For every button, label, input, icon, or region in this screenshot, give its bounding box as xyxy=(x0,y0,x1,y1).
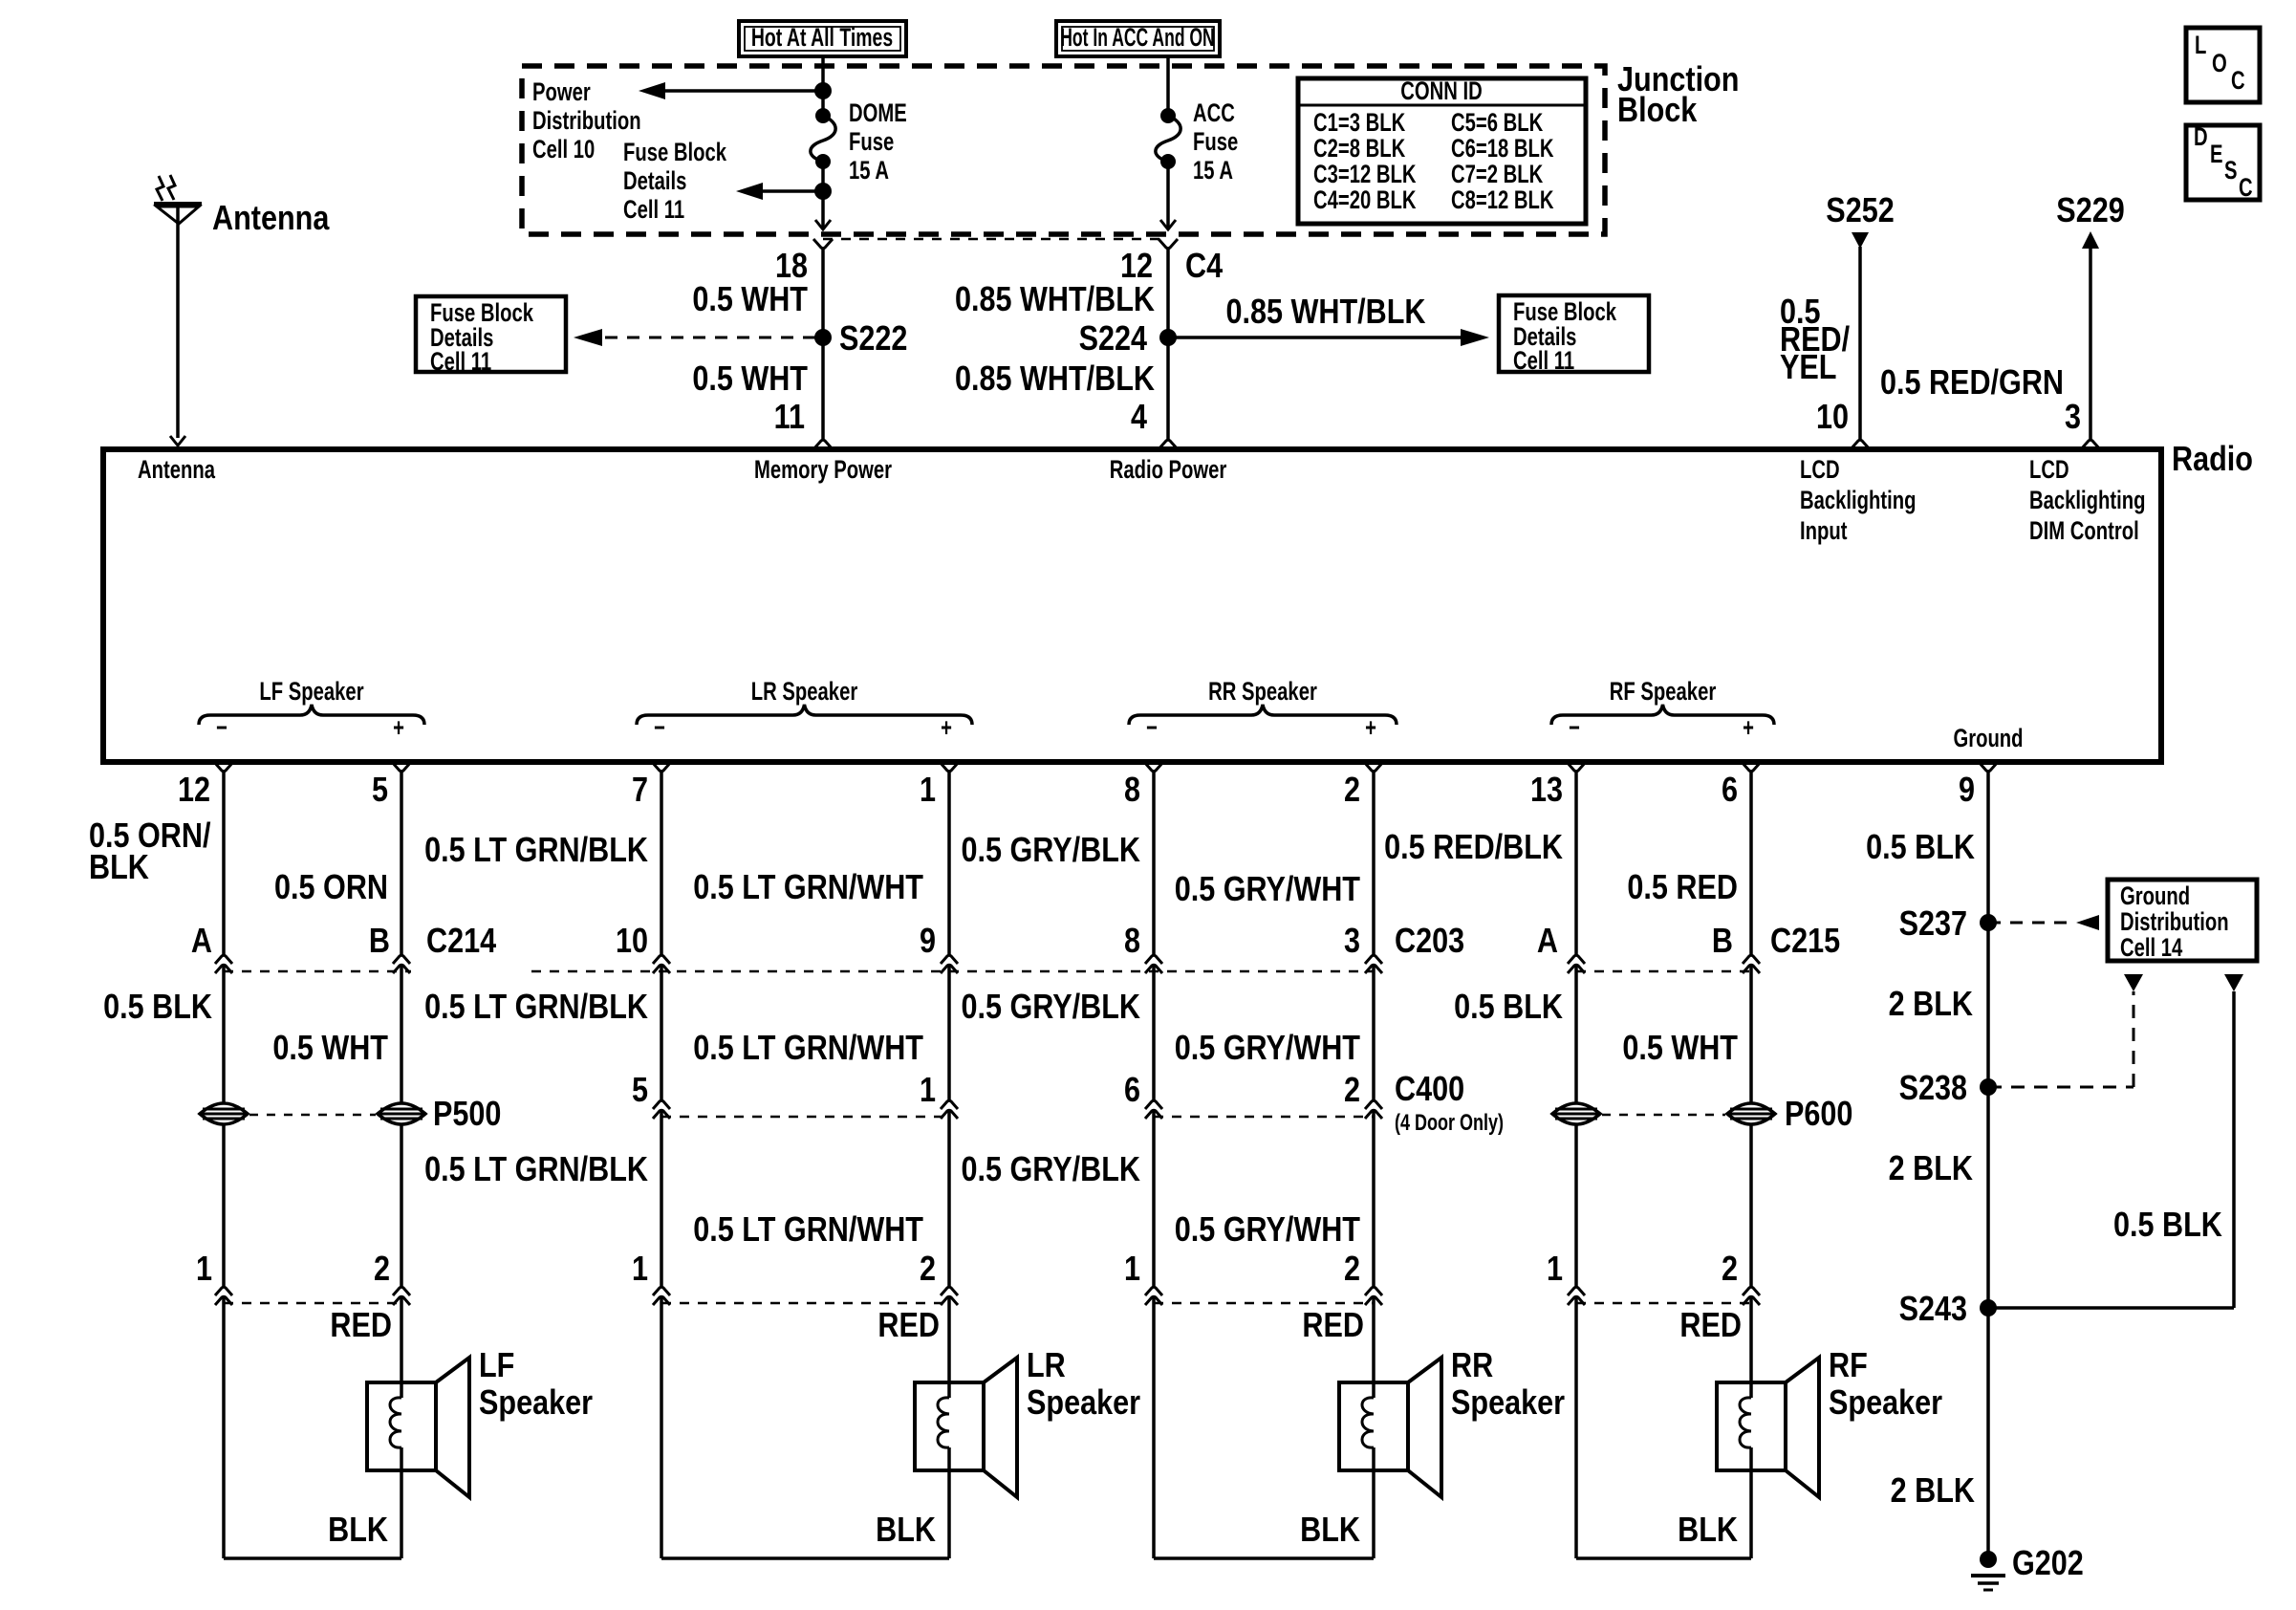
svg-text:7: 7 xyxy=(632,772,648,810)
svg-text:0.5 LT GRN/WHT: 0.5 LT GRN/WHT xyxy=(693,1211,923,1250)
svg-text:0.5 LT GRN/WHT: 0.5 LT GRN/WHT xyxy=(693,1030,923,1068)
svg-text:C1=3 BLK: C1=3 BLK xyxy=(1313,108,1406,138)
svg-text:Memory Power: Memory Power xyxy=(754,455,892,485)
svg-text:RED: RED xyxy=(330,1307,392,1345)
svg-text:Details: Details xyxy=(623,166,686,196)
svg-text:+: + xyxy=(941,713,952,743)
svg-text:Distribution: Distribution xyxy=(2120,907,2229,937)
svg-text:0.5 GRY/WHT: 0.5 GRY/WHT xyxy=(1175,1211,1361,1250)
svg-text:8: 8 xyxy=(1124,923,1140,961)
svg-text:18: 18 xyxy=(775,248,808,286)
svg-text:12: 12 xyxy=(1120,248,1153,286)
svg-text:5: 5 xyxy=(632,1072,648,1110)
svg-text:10: 10 xyxy=(616,923,648,961)
svg-text:S: S xyxy=(2224,156,2238,185)
svg-text:0.5 WHT: 0.5 WHT xyxy=(1622,1030,1738,1068)
svg-text:B: B xyxy=(1712,923,1733,961)
svg-text:C7=2 BLK: C7=2 BLK xyxy=(1451,160,1544,189)
svg-text:−: − xyxy=(654,713,665,743)
svg-text:C203: C203 xyxy=(1395,923,1464,961)
svg-text:LR: LR xyxy=(1027,1347,1066,1385)
svg-text:Speaker: Speaker xyxy=(1451,1384,1565,1423)
svg-text:E: E xyxy=(2210,140,2223,169)
svg-text:BLK: BLK xyxy=(876,1512,936,1550)
svg-text:Fuse Block: Fuse Block xyxy=(623,138,727,167)
svg-text:ACC: ACC xyxy=(1193,98,1235,128)
svg-text:1: 1 xyxy=(920,772,936,810)
svg-text:+: + xyxy=(1365,713,1376,743)
svg-text:Fuse: Fuse xyxy=(1193,127,1238,157)
svg-text:O: O xyxy=(2212,49,2227,78)
svg-text:YEL: YEL xyxy=(1780,349,1836,387)
svg-text:LF Speaker: LF Speaker xyxy=(259,677,363,707)
svg-text:0.5 LT GRN/BLK: 0.5 LT GRN/BLK xyxy=(424,1151,648,1189)
svg-text:Power: Power xyxy=(532,77,591,107)
svg-text:BLK: BLK xyxy=(1678,1512,1738,1550)
svg-text:D: D xyxy=(2194,122,2208,152)
svg-text:12: 12 xyxy=(178,772,210,810)
svg-text:3: 3 xyxy=(2065,399,2081,437)
svg-text:2: 2 xyxy=(1722,1251,1738,1289)
svg-text:0.5 LT GRN/BLK: 0.5 LT GRN/BLK xyxy=(424,989,648,1027)
svg-text:2: 2 xyxy=(374,1251,390,1289)
svg-text:0.5 WHT: 0.5 WHT xyxy=(692,360,808,399)
svg-text:13: 13 xyxy=(1530,772,1563,810)
svg-text:RF Speaker: RF Speaker xyxy=(1610,677,1716,707)
svg-text:Cell 10: Cell 10 xyxy=(532,135,595,164)
svg-text:Distribution: Distribution xyxy=(532,106,641,136)
svg-text:G202: G202 xyxy=(2012,1545,2084,1583)
svg-text:2 BLK: 2 BLK xyxy=(1889,986,1973,1024)
svg-text:4: 4 xyxy=(1131,399,1147,437)
svg-text:Speaker: Speaker xyxy=(1027,1384,1140,1423)
svg-text:3: 3 xyxy=(1344,923,1360,961)
svg-text:0.85 WHT/BLK: 0.85 WHT/BLK xyxy=(1225,294,1425,332)
svg-text:0.5 GRY/BLK: 0.5 GRY/BLK xyxy=(961,989,1140,1027)
svg-text:Backlighting: Backlighting xyxy=(1800,486,1916,515)
svg-text:RR: RR xyxy=(1451,1347,1493,1385)
svg-text:S229: S229 xyxy=(2056,192,2124,230)
svg-text:S238: S238 xyxy=(1899,1070,1967,1108)
svg-text:0.85 WHT/BLK: 0.85 WHT/BLK xyxy=(955,281,1155,319)
svg-text:BLK: BLK xyxy=(328,1512,388,1550)
svg-text:10: 10 xyxy=(1816,399,1849,437)
svg-text:Antenna: Antenna xyxy=(212,200,330,238)
svg-text:LR Speaker: LR Speaker xyxy=(751,677,857,707)
svg-text:S237: S237 xyxy=(1899,905,1967,944)
svg-text:11: 11 xyxy=(774,399,805,437)
svg-text:C: C xyxy=(2239,173,2253,203)
svg-text:−: − xyxy=(1146,713,1158,743)
svg-text:0.85 WHT/BLK: 0.85 WHT/BLK xyxy=(955,360,1155,399)
svg-text:0.5 WHT: 0.5 WHT xyxy=(272,1030,388,1068)
svg-text:Speaker: Speaker xyxy=(1829,1384,1942,1423)
svg-text:RED: RED xyxy=(1679,1307,1742,1345)
svg-text:0.5 GRY/BLK: 0.5 GRY/BLK xyxy=(961,832,1140,870)
svg-text:0.5 BLK: 0.5 BLK xyxy=(1454,989,1563,1027)
svg-text:Speaker: Speaker xyxy=(479,1384,593,1423)
svg-text:+: + xyxy=(1743,713,1754,743)
svg-text:A: A xyxy=(191,923,212,961)
svg-text:S243: S243 xyxy=(1899,1291,1967,1329)
svg-text:9: 9 xyxy=(920,923,936,961)
svg-text:RED: RED xyxy=(877,1307,940,1345)
svg-text:LF: LF xyxy=(479,1347,514,1385)
svg-text:1: 1 xyxy=(196,1251,212,1289)
svg-text:BLK: BLK xyxy=(89,849,149,887)
svg-text:0.5 LT GRN/WHT: 0.5 LT GRN/WHT xyxy=(693,869,923,907)
svg-text:2 BLK: 2 BLK xyxy=(1889,1150,1973,1188)
svg-text:Ground: Ground xyxy=(1953,724,2023,753)
svg-text:2: 2 xyxy=(920,1251,936,1289)
svg-text:Hot At All Times: Hot At All Times xyxy=(751,23,893,52)
svg-text:2 BLK: 2 BLK xyxy=(1891,1472,1975,1511)
svg-text:S252: S252 xyxy=(1826,192,1894,230)
svg-text:C8=12 BLK: C8=12 BLK xyxy=(1451,185,1554,215)
svg-text:LCD: LCD xyxy=(1800,455,1840,485)
svg-text:S222: S222 xyxy=(839,320,907,359)
svg-text:0.5 RED: 0.5 RED xyxy=(1627,869,1738,907)
svg-text:B: B xyxy=(369,923,390,961)
svg-text:1: 1 xyxy=(920,1072,936,1110)
svg-text:15 A: 15 A xyxy=(1193,156,1233,185)
svg-text:CONN ID: CONN ID xyxy=(1400,76,1482,106)
svg-text:0.5 BLK: 0.5 BLK xyxy=(1866,829,1975,867)
svg-text:2: 2 xyxy=(1344,772,1360,810)
svg-text:C: C xyxy=(2231,66,2245,96)
svg-text:0.5 RED/BLK: 0.5 RED/BLK xyxy=(1384,829,1563,867)
svg-text:−: − xyxy=(216,713,227,743)
svg-text:P600: P600 xyxy=(1785,1096,1852,1134)
svg-text:Cell 11: Cell 11 xyxy=(430,347,491,377)
svg-text:C400: C400 xyxy=(1395,1071,1464,1109)
svg-text:0.5 LT GRN/BLK: 0.5 LT GRN/BLK xyxy=(424,832,648,870)
svg-text:Cell 11: Cell 11 xyxy=(623,195,684,225)
svg-text:S224: S224 xyxy=(1079,320,1148,359)
svg-text:Cell 11: Cell 11 xyxy=(1513,346,1574,376)
svg-text:DOME: DOME xyxy=(849,98,907,128)
svg-text:Cell 14: Cell 14 xyxy=(2120,933,2183,963)
svg-text:L: L xyxy=(2195,31,2206,60)
svg-text:Block: Block xyxy=(1617,92,1698,130)
svg-text:1: 1 xyxy=(1547,1251,1563,1289)
svg-text:+: + xyxy=(393,713,404,743)
svg-text:6: 6 xyxy=(1722,772,1738,810)
svg-text:2: 2 xyxy=(1344,1251,1360,1289)
svg-text:Ground: Ground xyxy=(2120,881,2190,911)
svg-text:C4=20 BLK: C4=20 BLK xyxy=(1313,185,1417,215)
svg-text:Antenna: Antenna xyxy=(138,455,216,485)
svg-text:0.5 BLK: 0.5 BLK xyxy=(2113,1207,2222,1245)
svg-text:C6=18 BLK: C6=18 BLK xyxy=(1451,134,1554,163)
svg-text:RF: RF xyxy=(1829,1347,1868,1385)
svg-text:0.5 GRY/WHT: 0.5 GRY/WHT xyxy=(1175,871,1361,909)
svg-text:C5=6 BLK: C5=6 BLK xyxy=(1451,108,1544,138)
svg-text:Hot In ACC And ON: Hot In ACC And ON xyxy=(1060,22,1214,52)
svg-text:0.5 WHT: 0.5 WHT xyxy=(692,281,808,319)
svg-text:Radio Power: Radio Power xyxy=(1110,455,1227,485)
svg-text:DIM Control: DIM Control xyxy=(2029,516,2139,546)
svg-text:5: 5 xyxy=(372,772,388,810)
svg-text:Fuse: Fuse xyxy=(849,127,894,157)
svg-text:15 A: 15 A xyxy=(849,156,889,185)
svg-text:−: − xyxy=(1569,713,1580,743)
svg-text:C215: C215 xyxy=(1770,923,1840,961)
svg-text:RED: RED xyxy=(1302,1307,1364,1345)
svg-text:C2=8 BLK: C2=8 BLK xyxy=(1313,134,1406,163)
svg-text:2: 2 xyxy=(1344,1072,1360,1110)
svg-text:0.5 BLK: 0.5 BLK xyxy=(103,989,212,1027)
svg-text:Input: Input xyxy=(1800,516,1848,546)
svg-text:C3=12 BLK: C3=12 BLK xyxy=(1313,160,1417,189)
svg-text:BLK: BLK xyxy=(1300,1512,1360,1550)
svg-text:9: 9 xyxy=(1959,772,1975,810)
svg-text:Backlighting: Backlighting xyxy=(2029,486,2145,515)
svg-text:C214: C214 xyxy=(426,923,497,961)
svg-text:6: 6 xyxy=(1124,1072,1140,1110)
svg-text:8: 8 xyxy=(1124,772,1140,810)
svg-text:C4: C4 xyxy=(1185,248,1223,286)
svg-text:P500: P500 xyxy=(433,1096,501,1134)
svg-text:Radio: Radio xyxy=(2172,441,2253,479)
svg-text:1: 1 xyxy=(1124,1251,1140,1289)
svg-text:(4 Door Only): (4 Door Only) xyxy=(1395,1111,1504,1136)
svg-text:LCD: LCD xyxy=(2029,455,2069,485)
svg-text:1: 1 xyxy=(632,1251,648,1289)
svg-text:0.5 RED/GRN: 0.5 RED/GRN xyxy=(1880,364,2064,402)
svg-text:A: A xyxy=(1537,923,1558,961)
svg-text:RR Speaker: RR Speaker xyxy=(1208,677,1317,707)
svg-text:0.5 GRY/WHT: 0.5 GRY/WHT xyxy=(1175,1030,1361,1068)
svg-text:0.5 GRY/BLK: 0.5 GRY/BLK xyxy=(961,1151,1140,1189)
svg-text:0.5 ORN: 0.5 ORN xyxy=(274,869,388,907)
